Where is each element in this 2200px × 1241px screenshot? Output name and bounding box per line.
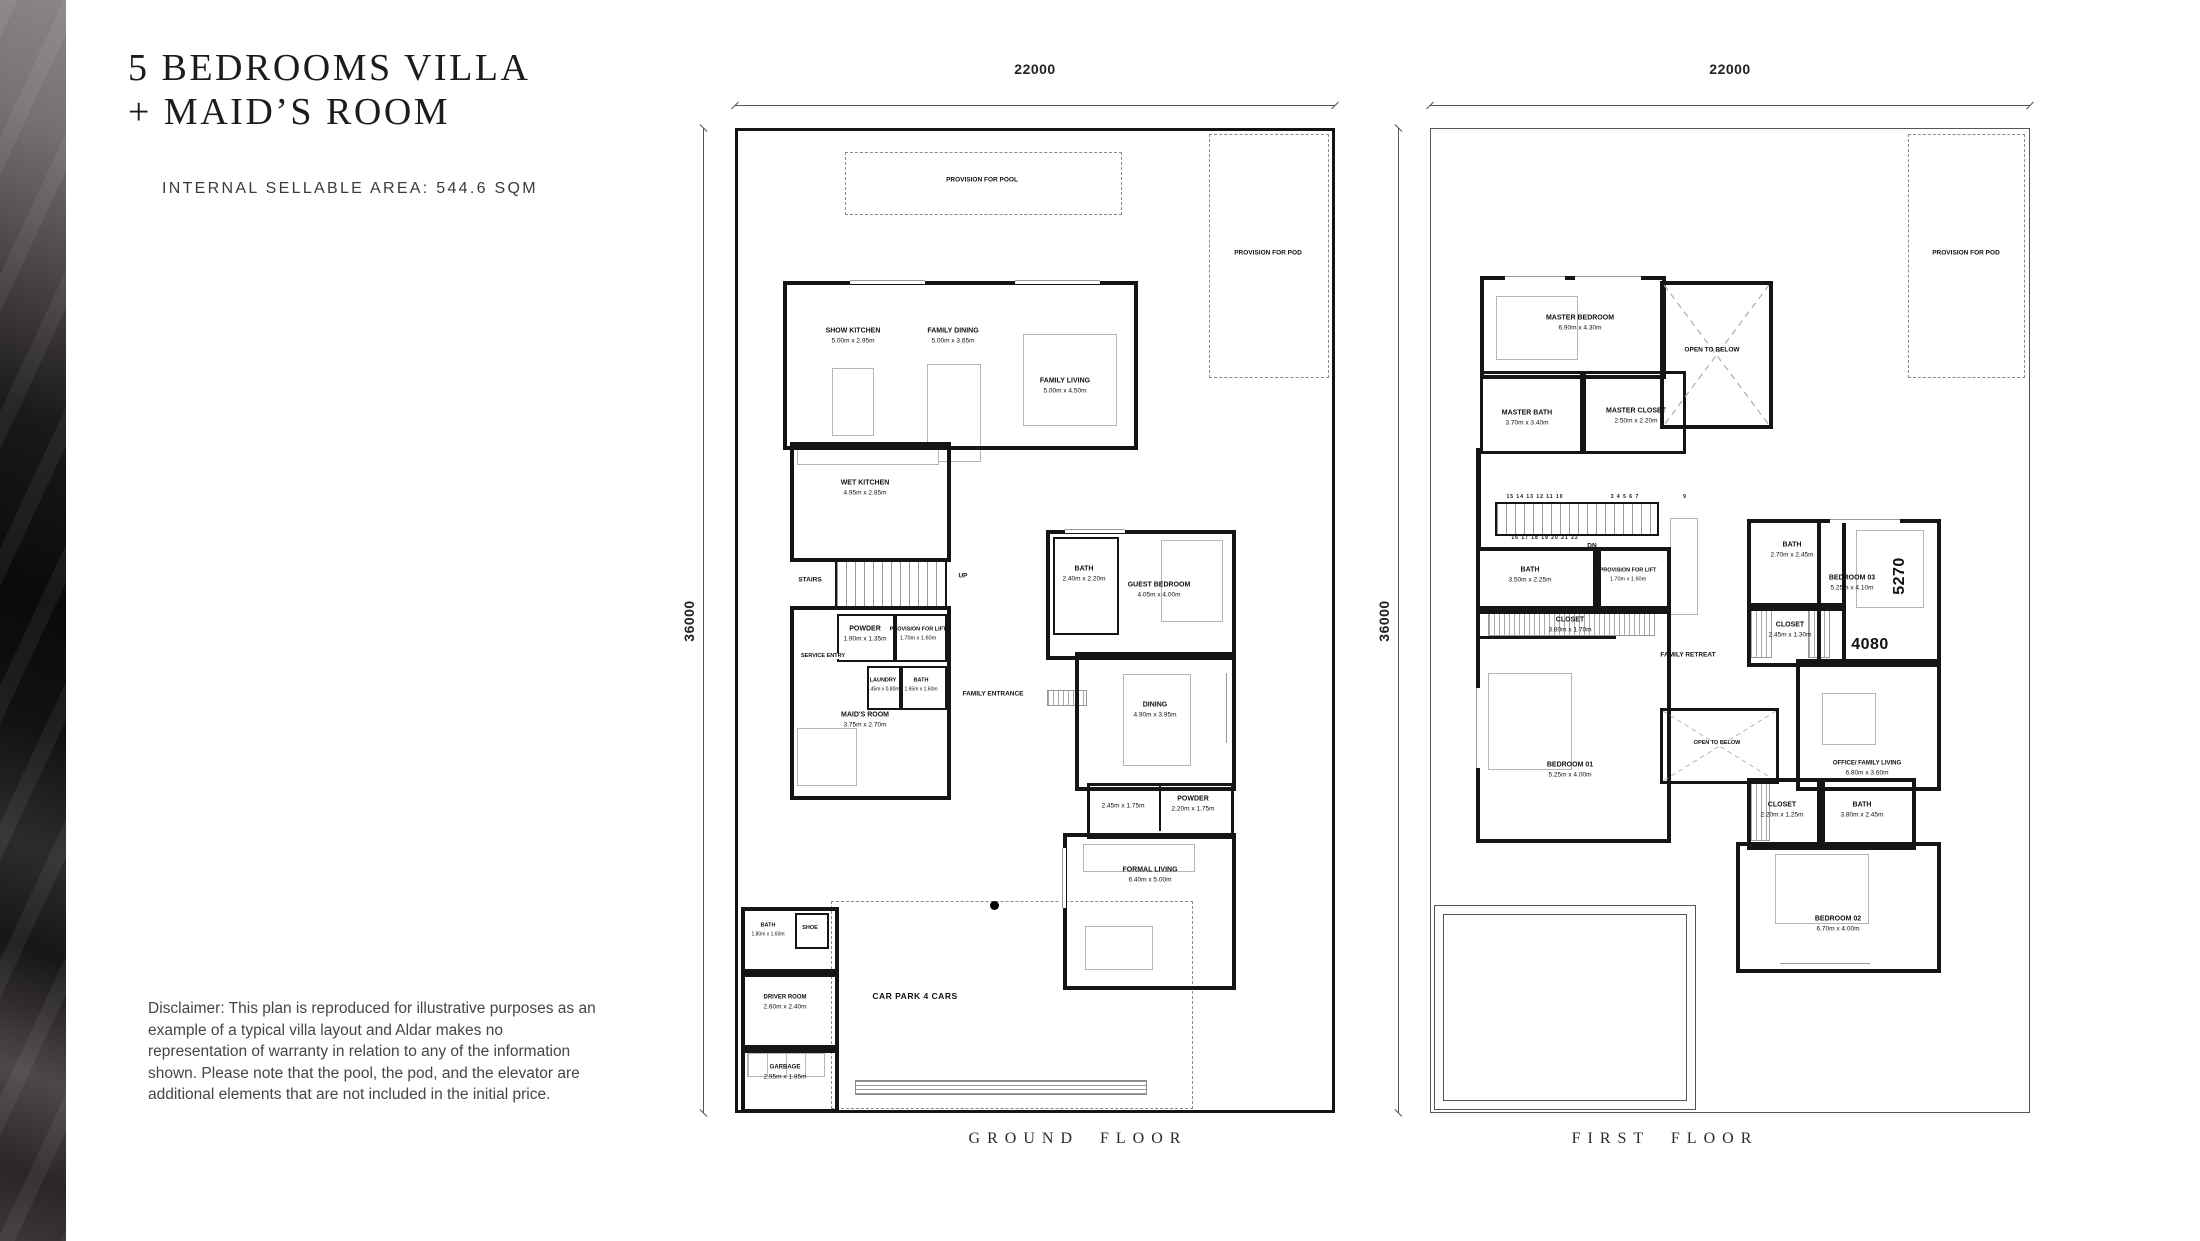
room-name: BATH (1063, 565, 1106, 575)
room-label-bath2: BATH 1.80m x 1.60m (751, 921, 784, 940)
family-entrance-label: FAMILY ENTRANCE (962, 691, 1023, 698)
family-retreat-label: FAMILY RETREAT (1660, 652, 1715, 659)
room-size: 4.95m x 2.85m (841, 489, 890, 498)
room-name: SHOW KITCHEN (826, 327, 881, 337)
pod-label: PROVISION FOR POD (1932, 250, 2000, 257)
room-label-garbage: GARBAGE 2.95m x 1.85m (764, 1063, 807, 1082)
wet-kitchen-walls (790, 442, 951, 562)
width-dimension-line: 22000 (735, 105, 1335, 106)
room-name: BATH (1841, 801, 1884, 811)
stair-numbers-mid: 3 4 5 6 7 (1611, 494, 1639, 500)
bedroom1-walls (1476, 606, 1671, 843)
room-label-family-dining: FAMILY DINING 5.00m x 3.65m (927, 327, 978, 346)
driveway-ramp (855, 1080, 1147, 1095)
window (1224, 673, 1230, 743)
powder2-divider-wall (1159, 785, 1161, 831)
roof-terrace-inner-outline (1443, 914, 1687, 1101)
room-name: BATH (1771, 541, 1814, 551)
dimension-4080: 4080 (1851, 636, 1889, 654)
stair-numbers-top: 15 14 13 12 11 10 (1506, 494, 1563, 500)
window (1060, 848, 1066, 908)
room-label-family-living: FAMILY LIVING 5.00m x 4.50m (1040, 377, 1090, 396)
width-dimension-value: 22000 (1430, 61, 2030, 77)
dimension-5270: 5270 (1891, 557, 1909, 595)
room-name: BEDROOM 01 (1547, 761, 1593, 771)
room-name: CLOSET (1761, 801, 1804, 811)
room-name: DINING (1134, 701, 1177, 711)
room-size: 2.70m x 2.45m (1771, 551, 1814, 560)
room-name: MAID'S ROOM (841, 711, 889, 721)
width-dimension-line: 22000 (1430, 105, 2030, 106)
room-label-bedroom3: BEDROOM 03 5.25m x 4.10m (1829, 574, 1875, 593)
bedroom2-walls (1736, 842, 1941, 973)
dining-walls (1075, 652, 1236, 791)
room-size: 3.70m x 3.40m (1502, 419, 1552, 428)
room-label-lift: PROVISION FOR LIFT 1.70m x 1.60m (1600, 566, 1657, 585)
room-label-formal-living: FORMAL LIVING 6.40m x 5.00m (1122, 866, 1177, 885)
window (1830, 517, 1900, 523)
open-to-below-x (1664, 285, 1769, 425)
room-size: 6.40m x 5.00m (1122, 876, 1177, 885)
room-size: 4.05m x 4.00m (1128, 591, 1191, 600)
disclaimer-text: Disclaimer: This plan is reproduced for … (148, 998, 600, 1106)
room-size: 6.80m x 3.60m (1833, 769, 1901, 778)
room-name: POWDER (844, 625, 887, 635)
room-label-powder1: POWDER 1.90m x 1.35m (844, 625, 887, 644)
pod-label: PROVISION FOR POD (1234, 250, 1302, 257)
guest-bath-walls (1053, 537, 1119, 635)
room-size: 2.40m x 2.20m (1063, 575, 1106, 584)
room-size: 5.00m x 4.50m (1040, 387, 1090, 396)
room-name: BATH (751, 921, 784, 931)
room-label-master-closet: MASTER CLOSET 2.50m x 2.20m (1606, 407, 1666, 426)
room-size: 6.70m x 4.00m (1815, 925, 1861, 934)
room-label-closet1: CLOSET 3.80m x 1.70m (1549, 616, 1592, 635)
room-label-show-kitchen: SHOW KITCHEN 5.00m x 2.95m (826, 327, 881, 346)
provision-for-pool-area (845, 152, 1122, 215)
brochure-page: 5 BEDROOMS VILLA + MAID’S ROOM INTERNAL … (0, 0, 2200, 1241)
shoe-walls (795, 913, 829, 949)
formal-living-walls (1063, 833, 1236, 990)
stairs-treads (835, 558, 947, 608)
window (1505, 274, 1565, 280)
room-label-corridor: 2.45m x 1.75m (1102, 802, 1145, 811)
room-name: GARBAGE (764, 1063, 807, 1073)
room-size: 5.00m x 3.65m (927, 337, 978, 346)
room-label-guest-bedroom: GUEST BEDROOM 4.05m x 4.00m (1128, 581, 1191, 600)
room-size: 1.70m x 1.60m (1600, 576, 1657, 585)
room-size: 3.80m x 1.70m (1549, 626, 1592, 635)
room-size: 4.90m x 3.95m (1134, 711, 1177, 720)
width-dimension-value: 22000 (735, 61, 1335, 77)
room-name: PROVISION FOR LIFT (890, 625, 947, 635)
page-title: 5 BEDROOMS VILLA + MAID’S ROOM (128, 46, 530, 134)
room-label-closet3: CLOSET 2.20m x 1.25m (1761, 801, 1804, 820)
room-size: 1.65m x 1.60m (904, 686, 937, 695)
pool-label: PROVISION FOR POOL (946, 177, 1018, 184)
room-label-lift: PROVISION FOR LIFT 1.70m x 1.60m (890, 625, 947, 644)
window (1474, 688, 1480, 768)
room-label-bath3: BATH 3.50m x 2.25m (1509, 566, 1552, 585)
room-size: 5.25m x 4.00m (1547, 771, 1593, 780)
marble-texture-strip (0, 0, 66, 1241)
first-floor-caption: FIRST FLOOR (1465, 1130, 1865, 1148)
room-label-bedroom2: BEDROOM 02 6.70m x 4.00m (1815, 915, 1861, 934)
room-label-maids-room: MAID'S ROOM 3.75m x 2.70m (841, 711, 889, 730)
stair-numbers-bottom: 16 17 18 19 20 21 22 (1511, 535, 1578, 541)
room-size: 2.45m x 1.75m (1102, 802, 1145, 811)
room-name: CLOSET (1549, 616, 1592, 626)
title-line1: 5 BEDROOMS VILLA (128, 46, 530, 90)
room-name: CLOSET (1769, 621, 1812, 631)
room-name: MASTER BEDROOM (1546, 314, 1614, 324)
room-label-driver-room: DRIVER ROOM 2.60m x 2.40m (763, 993, 806, 1012)
room-size: 2.50m x 2.20m (1606, 417, 1666, 426)
room-size: 1.70m x 1.60m (890, 635, 947, 644)
exterior-wall-segment (1476, 448, 1481, 547)
room-name: FORMAL LIVING (1122, 866, 1177, 876)
room-label-laundry: LAUNDRY 1.45m x 0.80m (866, 676, 899, 695)
room-name: FAMILY LIVING (1040, 377, 1090, 387)
room-name: BATH (904, 676, 937, 686)
room-label-powder2: POWDER 2.20m x 1.75m (1172, 795, 1215, 814)
service-entry-label: SERVICE ENTRY (799, 653, 847, 659)
window (1015, 278, 1100, 284)
open-to-below-x (1663, 711, 1776, 781)
dn-label: DN (1587, 543, 1596, 550)
room-label-shoe: SHOE (802, 925, 818, 931)
window (1575, 274, 1641, 280)
room-size: 2.45m x 1.30m (1769, 631, 1812, 640)
room-label-guest-bath: BATH 2.40m x 2.20m (1063, 565, 1106, 584)
room-size: 3.80m x 2.45m (1841, 811, 1884, 820)
height-dimension-line: 36000 (1398, 128, 1399, 1113)
room-label-bath5: BATH 3.80m x 2.45m (1841, 801, 1884, 820)
window (1780, 961, 1870, 967)
open-to-below-mid-walls (1660, 708, 1779, 784)
room-label-bath1: BATH 1.65m x 1.60m (904, 676, 937, 695)
living-wing-walls (783, 281, 1138, 450)
room-label-dining: DINING 4.90m x 3.95m (1134, 701, 1177, 720)
room-size: 2.95m x 1.85m (764, 1073, 807, 1082)
room-name: FAMILY DINING (927, 327, 978, 337)
room-name: MASTER CLOSET (1606, 407, 1666, 417)
room-name: BATH (1509, 566, 1552, 576)
stairs-treads (1495, 502, 1659, 536)
floor-plan-first: 22000 36000 PROVISION FOR POD (1430, 128, 2030, 1113)
room-name: MASTER BATH (1502, 409, 1552, 419)
room-size: 1.45m x 0.80m (866, 686, 899, 695)
room-size: 1.80m x 1.60m (751, 931, 784, 940)
floor-plan-ground: 22000 36000 PROVISION FOR POOL PROVISION… (735, 128, 1335, 1113)
room-name: PROVISION FOR LIFT (1600, 566, 1657, 576)
room-name: POWDER (1172, 795, 1215, 805)
car-park-label: CAR PARK 4 CARS (872, 991, 957, 1001)
stairs-label: STAIRS (796, 577, 823, 584)
room-label-master-bedroom: MASTER BEDROOM 6.90m x 4.30m (1546, 314, 1614, 333)
room-label-bedroom1: BEDROOM 01 5.25m x 4.00m (1547, 761, 1593, 780)
window (1065, 527, 1125, 533)
room-name: WET KITCHEN (841, 479, 890, 489)
room-size: 2.20m x 1.75m (1172, 805, 1215, 814)
room-name: GUEST BEDROOM (1128, 581, 1191, 591)
room-label-office: OFFICE/ FAMILY LIVING 6.80m x 3.60m (1833, 759, 1901, 778)
room-size: 3.50m x 2.25m (1509, 576, 1552, 585)
room-name: OFFICE/ FAMILY LIVING (1833, 759, 1901, 769)
room-name: BEDROOM 03 (1829, 574, 1875, 584)
height-dimension-value: 36000 (1376, 600, 1392, 641)
up-label: UP (958, 573, 967, 580)
height-dimension-value: 36000 (681, 600, 697, 641)
open-to-below-top-label: OPEN TO BELOW (1684, 347, 1739, 354)
room-name: DRIVER ROOM (763, 993, 806, 1003)
room-size: 1.90m x 1.35m (844, 635, 887, 644)
title-line2: + MAID’S ROOM (128, 90, 530, 134)
room-label-master-bath: MASTER BATH 3.70m x 3.40m (1502, 409, 1552, 428)
room-label-closet2: CLOSET 2.45m x 1.30m (1769, 621, 1812, 640)
retreat-sofa (1670, 518, 1698, 615)
room-size: 2.20m x 1.25m (1761, 811, 1804, 820)
room-label-bath4: BATH 2.70m x 2.45m (1771, 541, 1814, 560)
height-dimension-line: 36000 (703, 128, 704, 1113)
room-size: 5.25m x 4.10m (1829, 584, 1875, 593)
ground-floor-caption: GROUND FLOOR (878, 1130, 1278, 1148)
room-size: 2.60m x 2.40m (763, 1003, 806, 1012)
open-to-below-mid-label: OPEN TO BELOW (1694, 740, 1741, 746)
column-dot (990, 901, 999, 910)
window (850, 278, 925, 284)
open-to-below-top-walls (1660, 281, 1773, 429)
stair-number-nine: 9 (1683, 494, 1687, 500)
closet1-divider-wall (1476, 636, 1616, 639)
sellable-area-label: INTERNAL SELLABLE AREA: 544.6 SQM (162, 180, 538, 198)
room-size: 5.00m x 2.95m (826, 337, 881, 346)
room-label-wet-kitchen: WET KITCHEN 4.95m x 2.85m (841, 479, 890, 498)
room-name: LAUNDRY (866, 676, 899, 686)
room-size: 6.90m x 4.30m (1546, 324, 1614, 333)
room-size: 3.75m x 2.70m (841, 721, 889, 730)
room-name: BEDROOM 02 (1815, 915, 1861, 925)
